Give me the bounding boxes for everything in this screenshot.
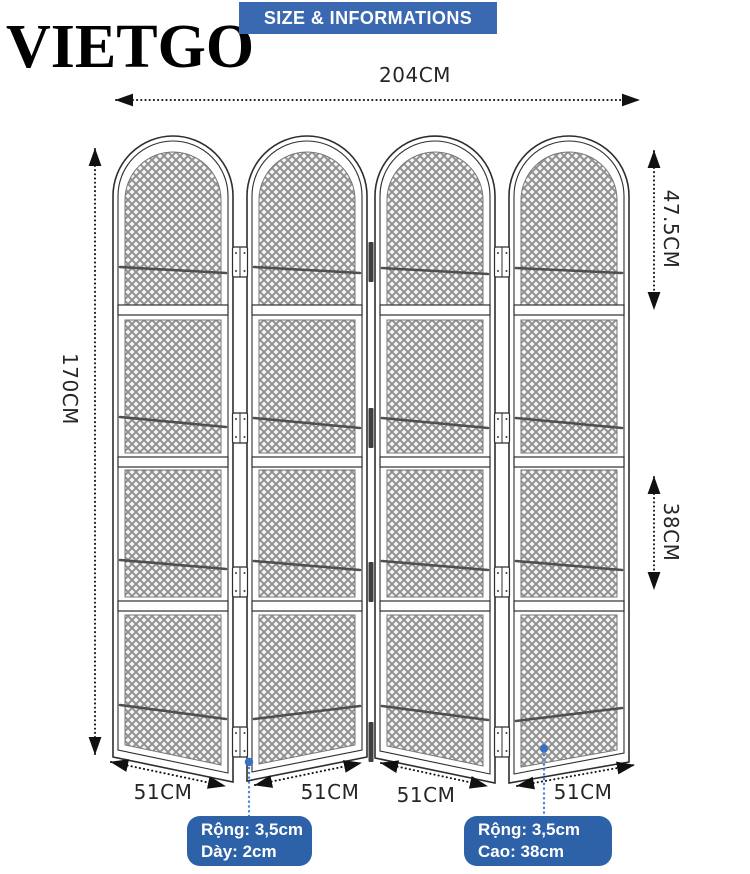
label-panel-1-width: 51CM: [103, 780, 223, 804]
brand-logo: VIETGO: [6, 16, 254, 78]
leader-dot-right: [540, 744, 548, 752]
label-panel-3-width: 51CM: [366, 783, 486, 807]
label-overall-width: 204CM: [355, 63, 475, 87]
leader-dot-left: [245, 758, 253, 766]
screen-panel-2: [247, 136, 367, 781]
label-panel-4-width: 51CM: [523, 780, 643, 804]
callout-left-line-2: Dày: 2cm: [201, 841, 312, 863]
callout-right-line-1: Rộng: 3,5cm: [478, 819, 612, 841]
label-lower-section-height: 38CM: [659, 472, 683, 592]
screen-panel-4: [509, 136, 629, 783]
folding-screen-diagram: [0, 0, 750, 874]
callout-section-size: Rộng: 3,5cm Cao: 38cm: [464, 816, 612, 866]
screen-panel-1: [113, 136, 233, 782]
label-arch-section-height: 47.5CM: [659, 169, 683, 289]
callout-frame-size: Rộng: 3,5cm Dày: 2cm: [187, 816, 312, 866]
label-overall-height: 170CM: [58, 329, 82, 449]
screen-panel-3: [375, 136, 495, 783]
center-joint-pins: [369, 242, 374, 762]
banner-title: SIZE & INFORMATIONS: [264, 8, 472, 29]
callout-right-line-2: Cao: 38cm: [478, 841, 612, 863]
callout-left-line-1: Rộng: 3,5cm: [201, 819, 312, 841]
size-information-infographic: VIETGO SIZE & INFORMATIONS 204CM 170CM 4…: [0, 0, 750, 874]
title-banner: SIZE & INFORMATIONS: [239, 2, 497, 34]
